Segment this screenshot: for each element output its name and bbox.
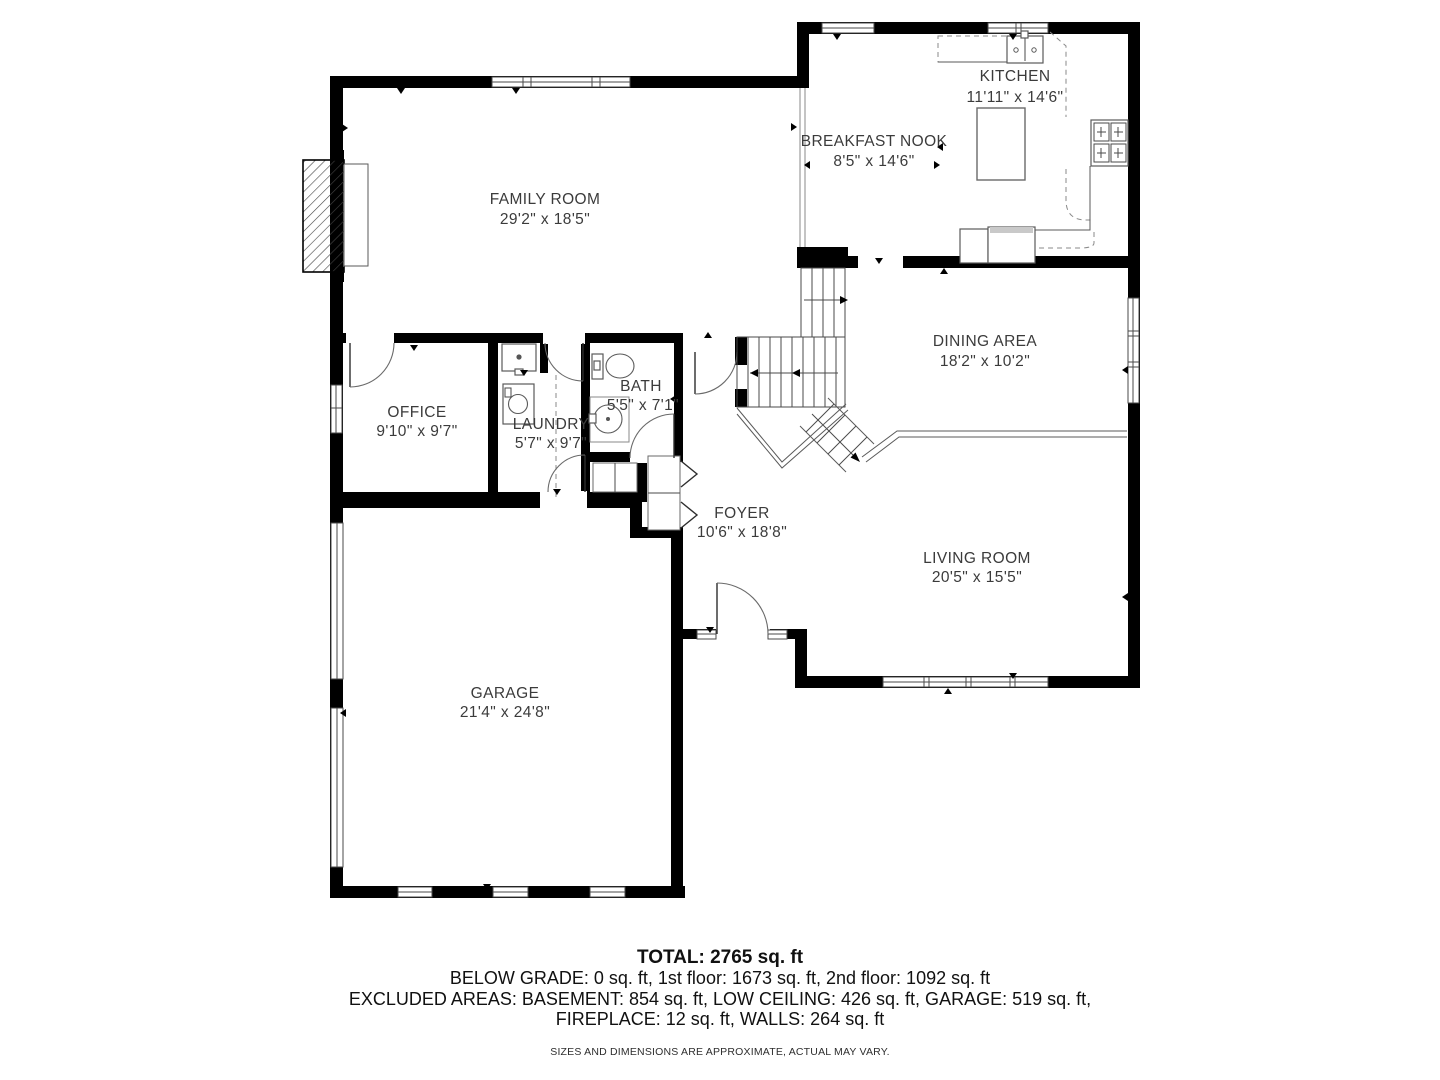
room-dims-dining-area: 18'2" x 10'2" — [940, 353, 1030, 370]
room-label-breakfast-nook: BREAKFAST NOOK — [801, 133, 948, 150]
fireplace — [303, 150, 368, 282]
room-dims-kitchen: 11'11" x 14'6" — [967, 89, 1064, 106]
room-label-living-room: LIVING ROOM — [923, 550, 1031, 567]
excluded-areas-text: EXCLUDED AREAS: BASEMENT: 854 sq. ft, LO… — [0, 989, 1440, 1010]
room-label-family-room: FAMILY ROOM — [490, 191, 601, 208]
room-dims-family-room: 29'2" x 18'5" — [500, 211, 590, 228]
room-label-dining-area: DINING AREA — [933, 333, 1038, 350]
refrigerator — [960, 227, 1035, 263]
stove — [1091, 120, 1128, 166]
floor-plan-drawing: KITCHEN 11'11" x 14'6" BREAKFAST NOOK 8'… — [0, 0, 1440, 1080]
excluded-areas-text2: FIREPLACE: 12 sq. ft, WALLS: 264 sq. ft — [0, 1009, 1440, 1030]
room-label-kitchen: KITCHEN — [980, 68, 1051, 85]
area-summary: TOTAL: 2765 sq. ft BELOW GRADE: 0 sq. ft… — [0, 948, 1440, 1058]
room-label-bath: BATH — [620, 378, 662, 395]
coat-closet — [593, 463, 637, 492]
staircase — [737, 268, 874, 472]
railings — [737, 404, 1127, 468]
doors — [350, 343, 768, 634]
room-dims-bath: 5'5" x 7'1" — [607, 397, 679, 414]
room-label-laundry: LAUNDRY — [513, 416, 590, 433]
room-dims-garage: 21'4" x 24'8" — [460, 704, 550, 721]
room-label-garage: GARAGE — [471, 685, 540, 702]
room-label-foyer: FOYER — [714, 505, 769, 522]
floor-areas-text: BELOW GRADE: 0 sq. ft, 1st floor: 1673 s… — [0, 968, 1440, 989]
foyer-closet — [648, 456, 697, 530]
room-dims-foyer: 10'6" x 18'8" — [697, 524, 787, 541]
room-dims-office: 9'10" x 9'7" — [376, 423, 457, 440]
room-dims-laundry: 5'7" x 9'7" — [515, 435, 587, 452]
laundry-sink — [502, 344, 536, 375]
wall-openings — [346, 255, 903, 640]
toilet — [592, 354, 634, 379]
room-label-office: OFFICE — [387, 404, 446, 421]
room-labels: KITCHEN 11'11" x 14'6" BREAKFAST NOOK 8'… — [376, 68, 1063, 721]
open-boundary — [800, 88, 805, 247]
disclaimer-text: SIZES AND DIMENSIONS ARE APPROXIMATE, AC… — [0, 1046, 1440, 1058]
floor-plan-page: KITCHEN 11'11" x 14'6" BREAKFAST NOOK 8'… — [0, 0, 1440, 1080]
room-dims-living-room: 20'5" x 15'5" — [932, 569, 1022, 586]
total-area-text: TOTAL: 2765 sq. ft — [0, 948, 1440, 968]
room-dims-breakfast-nook: 8'5" x 14'6" — [833, 153, 914, 170]
kitchen-island — [977, 108, 1025, 180]
